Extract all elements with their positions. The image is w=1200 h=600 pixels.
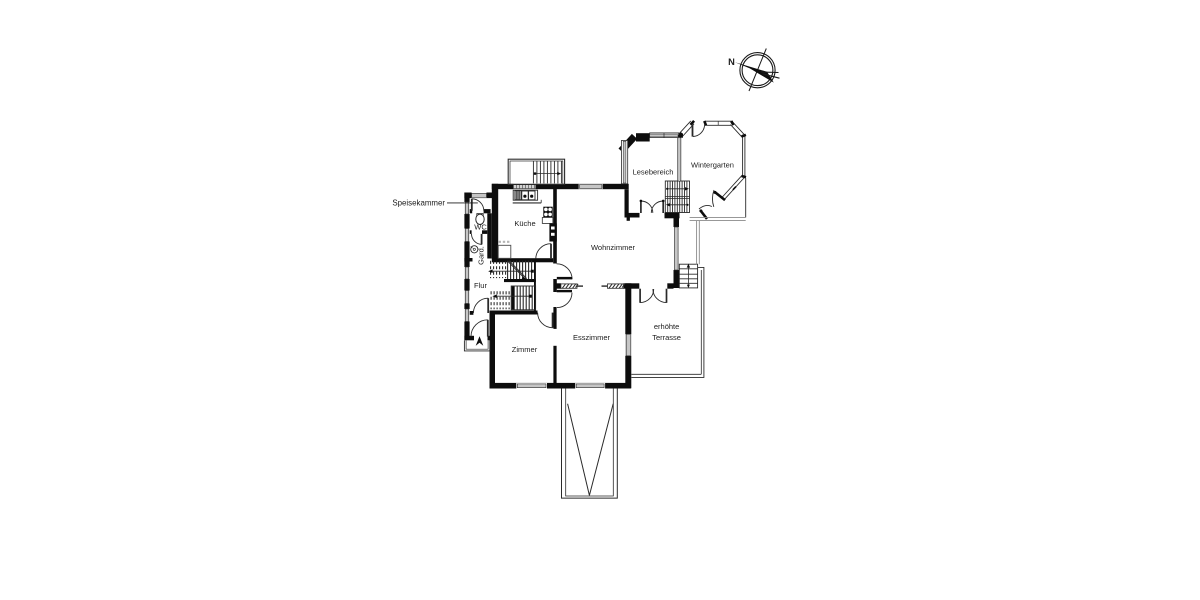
svg-text:WC: WC: [474, 222, 487, 231]
svg-text:Terrasse: Terrasse: [652, 333, 681, 342]
svg-text:Flur: Flur: [474, 281, 487, 290]
svg-text:Wohnzimmer: Wohnzimmer: [591, 243, 636, 252]
svg-text:Gard.: Gard.: [477, 246, 486, 265]
svg-text:Zimmer: Zimmer: [512, 345, 538, 354]
svg-text:Wintergarten: Wintergarten: [691, 160, 734, 169]
svg-text:Küche: Küche: [514, 219, 535, 228]
svg-text:Lesebereich: Lesebereich: [633, 168, 674, 177]
svg-text:N: N: [728, 57, 735, 67]
svg-text:Speisekammer: Speisekammer: [392, 199, 445, 208]
svg-text:Esszimmer: Esszimmer: [573, 333, 611, 342]
svg-text:erhöhte: erhöhte: [654, 322, 679, 331]
